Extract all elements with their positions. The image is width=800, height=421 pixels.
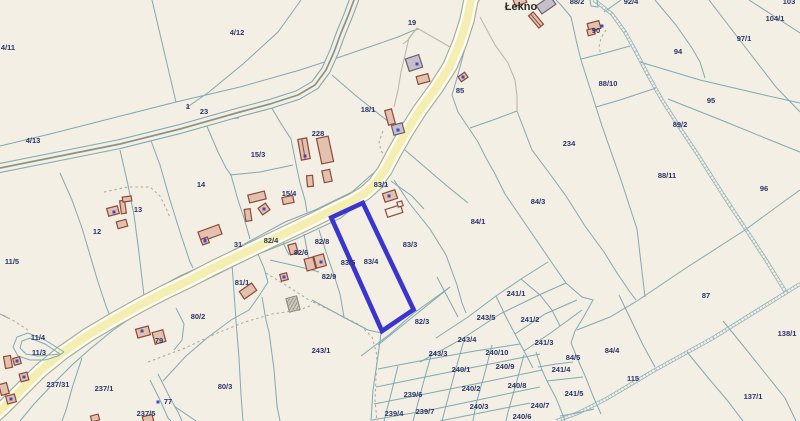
svg-text:83/4: 83/4 xyxy=(364,257,379,266)
svg-text:241/1: 241/1 xyxy=(507,289,526,298)
svg-text:Łekno: Łekno xyxy=(505,1,538,13)
svg-text:82/4: 82/4 xyxy=(264,236,279,245)
svg-text:241/2: 241/2 xyxy=(521,315,540,324)
svg-text:234: 234 xyxy=(563,139,576,148)
svg-text:239/4: 239/4 xyxy=(385,409,405,418)
svg-text:23: 23 xyxy=(200,107,208,116)
svg-text:31: 31 xyxy=(234,240,242,249)
svg-text:243/3: 243/3 xyxy=(429,349,448,358)
svg-text:82/8: 82/8 xyxy=(315,237,330,246)
svg-text:87: 87 xyxy=(702,291,710,300)
svg-text:18/1: 18/1 xyxy=(361,105,376,114)
svg-text:4/13: 4/13 xyxy=(26,136,41,145)
svg-text:95: 95 xyxy=(707,96,715,105)
svg-text:240/10: 240/10 xyxy=(486,348,509,357)
svg-text:96: 96 xyxy=(760,184,768,193)
svg-text:97/1: 97/1 xyxy=(737,34,752,43)
svg-text:94: 94 xyxy=(674,47,683,56)
svg-text:240/3: 240/3 xyxy=(470,402,489,411)
svg-text:14: 14 xyxy=(197,180,206,189)
svg-text:15/4: 15/4 xyxy=(282,189,297,198)
svg-text:79: 79 xyxy=(155,336,163,345)
svg-text:83/5: 83/5 xyxy=(341,258,356,267)
svg-text:84/4: 84/4 xyxy=(605,346,620,355)
svg-text:243/1: 243/1 xyxy=(312,346,331,355)
svg-text:11/5: 11/5 xyxy=(5,257,19,266)
svg-text:240/7: 240/7 xyxy=(531,401,550,410)
svg-text:11/4: 11/4 xyxy=(31,333,46,342)
svg-text:12: 12 xyxy=(93,227,101,236)
svg-text:240/9: 240/9 xyxy=(496,362,515,371)
svg-text:82/9: 82/9 xyxy=(322,272,337,281)
svg-text:240/8: 240/8 xyxy=(508,381,527,390)
svg-text:240/1: 240/1 xyxy=(452,365,471,374)
svg-text:82/3: 82/3 xyxy=(415,317,430,326)
svg-text:13: 13 xyxy=(134,205,142,214)
svg-text:241/5: 241/5 xyxy=(565,389,584,398)
svg-text:237/1: 237/1 xyxy=(95,384,114,393)
svg-text:228: 228 xyxy=(312,129,325,138)
svg-text:82/6: 82/6 xyxy=(294,248,309,257)
svg-text:88/10: 88/10 xyxy=(599,79,618,88)
svg-text:90: 90 xyxy=(592,26,600,35)
svg-text:1: 1 xyxy=(186,102,190,111)
svg-text:241/3: 241/3 xyxy=(535,338,554,347)
svg-text:84/5: 84/5 xyxy=(566,353,581,362)
svg-text:84/3: 84/3 xyxy=(531,197,546,206)
svg-text:85: 85 xyxy=(456,86,464,95)
svg-text:103: 103 xyxy=(783,0,796,6)
svg-text:77: 77 xyxy=(164,397,172,406)
svg-text:92/4: 92/4 xyxy=(624,0,639,6)
svg-text:4/12: 4/12 xyxy=(230,28,245,37)
svg-text:239/7: 239/7 xyxy=(416,407,435,416)
svg-text:237/5: 237/5 xyxy=(137,409,156,418)
svg-text:80/3: 80/3 xyxy=(218,382,233,391)
svg-text:104/1: 104/1 xyxy=(766,14,785,23)
svg-text:240/2: 240/2 xyxy=(462,384,481,393)
svg-text:239/6: 239/6 xyxy=(404,390,423,399)
svg-text:83/1: 83/1 xyxy=(374,180,389,189)
svg-text:243/4: 243/4 xyxy=(458,335,478,344)
svg-text:83/3: 83/3 xyxy=(403,240,418,249)
svg-text:84/1: 84/1 xyxy=(471,217,486,226)
svg-text:115: 115 xyxy=(627,374,639,383)
svg-text:88/2: 88/2 xyxy=(570,0,585,6)
svg-text:137/1: 137/1 xyxy=(744,392,763,401)
svg-text:88/11: 88/11 xyxy=(658,171,676,180)
svg-text:4/11: 4/11 xyxy=(1,43,15,52)
svg-text:11/3: 11/3 xyxy=(32,348,46,357)
svg-text:138/1: 138/1 xyxy=(778,329,797,338)
svg-text:80/2: 80/2 xyxy=(191,312,206,321)
svg-text:19: 19 xyxy=(408,18,416,27)
svg-text:81/1: 81/1 xyxy=(235,278,250,287)
svg-text:243/5: 243/5 xyxy=(477,313,496,322)
svg-text:15/3: 15/3 xyxy=(251,150,266,159)
svg-text:241/4: 241/4 xyxy=(552,365,572,374)
svg-text:240/6: 240/6 xyxy=(513,412,532,421)
svg-text:237/31: 237/31 xyxy=(47,380,70,389)
svg-text:89/2: 89/2 xyxy=(673,120,688,129)
